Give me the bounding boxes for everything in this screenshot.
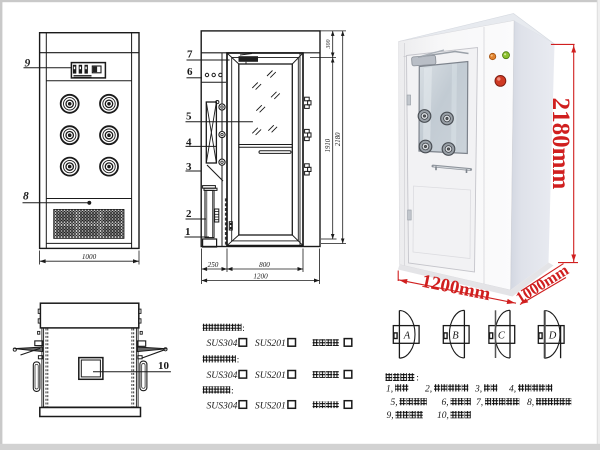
svg-text:1: 1 <box>185 226 191 238</box>
svg-text:800: 800 <box>259 261 270 269</box>
svg-text:SUS201: SUS201 <box>255 400 286 411</box>
svg-text:300: 300 <box>326 40 332 50</box>
svg-text:SUS304: SUS304 <box>207 400 238 411</box>
svg-text:6,: 6, <box>442 398 449 408</box>
svg-text:5: 5 <box>186 111 192 123</box>
svg-text:SUS201: SUS201 <box>255 338 286 349</box>
svg-text:5,: 5, <box>391 398 398 408</box>
svg-text:1910: 1910 <box>325 138 332 152</box>
svg-text::: : <box>242 323 245 333</box>
svg-text:2180mm: 2180mm <box>547 98 574 190</box>
svg-text:6: 6 <box>187 66 193 78</box>
svg-text:2180: 2180 <box>335 132 342 146</box>
svg-text:2,: 2, <box>425 384 432 394</box>
svg-text:SUS201: SUS201 <box>255 370 286 381</box>
svg-text::: : <box>416 374 419 384</box>
svg-text:3,: 3, <box>474 384 482 394</box>
svg-text:7,: 7, <box>476 398 483 408</box>
svg-text:7: 7 <box>187 49 193 61</box>
svg-text:1000: 1000 <box>82 253 97 261</box>
svg-text:8,: 8, <box>527 398 534 408</box>
svg-text:9,: 9, <box>387 411 394 421</box>
svg-text:1200: 1200 <box>253 272 268 280</box>
svg-text::: : <box>231 385 234 395</box>
svg-text::: : <box>237 354 240 364</box>
svg-text:SUS304: SUS304 <box>207 338 238 349</box>
svg-text:C: C <box>498 330 506 341</box>
svg-text:SUS304: SUS304 <box>207 370 238 381</box>
svg-text:2: 2 <box>186 208 192 220</box>
svg-text:A: A <box>403 330 411 341</box>
svg-text:10: 10 <box>158 360 170 372</box>
svg-text:4,: 4, <box>509 384 516 394</box>
svg-text:B: B <box>452 330 459 341</box>
svg-text:8: 8 <box>23 191 29 203</box>
svg-text:250: 250 <box>208 261 219 269</box>
svg-text:10,: 10, <box>437 411 449 421</box>
svg-text:D: D <box>548 330 557 341</box>
svg-text:1,: 1, <box>386 384 393 394</box>
